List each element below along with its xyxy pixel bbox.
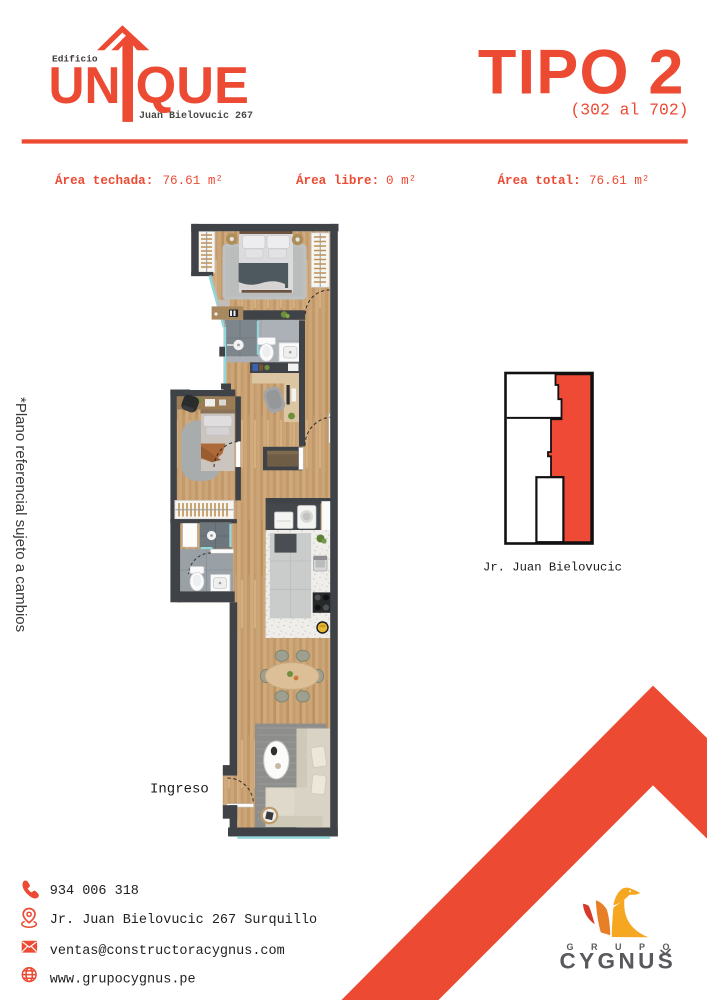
svg-text:934 006 318: 934 006 318 (50, 884, 139, 899)
svg-text:QUE: QUE (136, 56, 250, 114)
svg-text:UN: UN (49, 56, 121, 114)
svg-text:ventas@constructoracygnus.com: ventas@constructoracygnus.com (50, 944, 285, 959)
svg-text:0 m²: 0 m² (386, 174, 416, 188)
svg-text:TIPO 2: TIPO 2 (478, 38, 685, 108)
svg-text:Área techada:: Área techada: (55, 173, 153, 188)
svg-text:Área libre:: Área libre: (296, 173, 379, 188)
svg-text:Jr. Juan Bielovucic: Jr. Juan Bielovucic (483, 561, 622, 575)
svg-text:Jr. Juan Bielovucic 267 Surqui: Jr. Juan Bielovucic 267 Surquillo (50, 913, 317, 928)
svg-text:Área total:: Área total: (498, 173, 581, 188)
svg-text:*Plano referencial sujeto a ca: *Plano referencial sujeto a cambios (12, 397, 29, 632)
svg-text:76.61 m²: 76.61 m² (163, 174, 223, 188)
svg-text:76.61 m²: 76.61 m² (589, 174, 649, 188)
svg-text:Juan Bielovucic 267: Juan Bielovucic 267 (139, 110, 253, 122)
svg-text:(302 al 702): (302 al 702) (570, 101, 688, 120)
svg-text:Ingreso: Ingreso (150, 782, 209, 798)
svg-text:CYGNUS: CYGNUS (560, 949, 677, 974)
svg-text:www.grupocygnus.pe: www.grupocygnus.pe (50, 973, 196, 988)
